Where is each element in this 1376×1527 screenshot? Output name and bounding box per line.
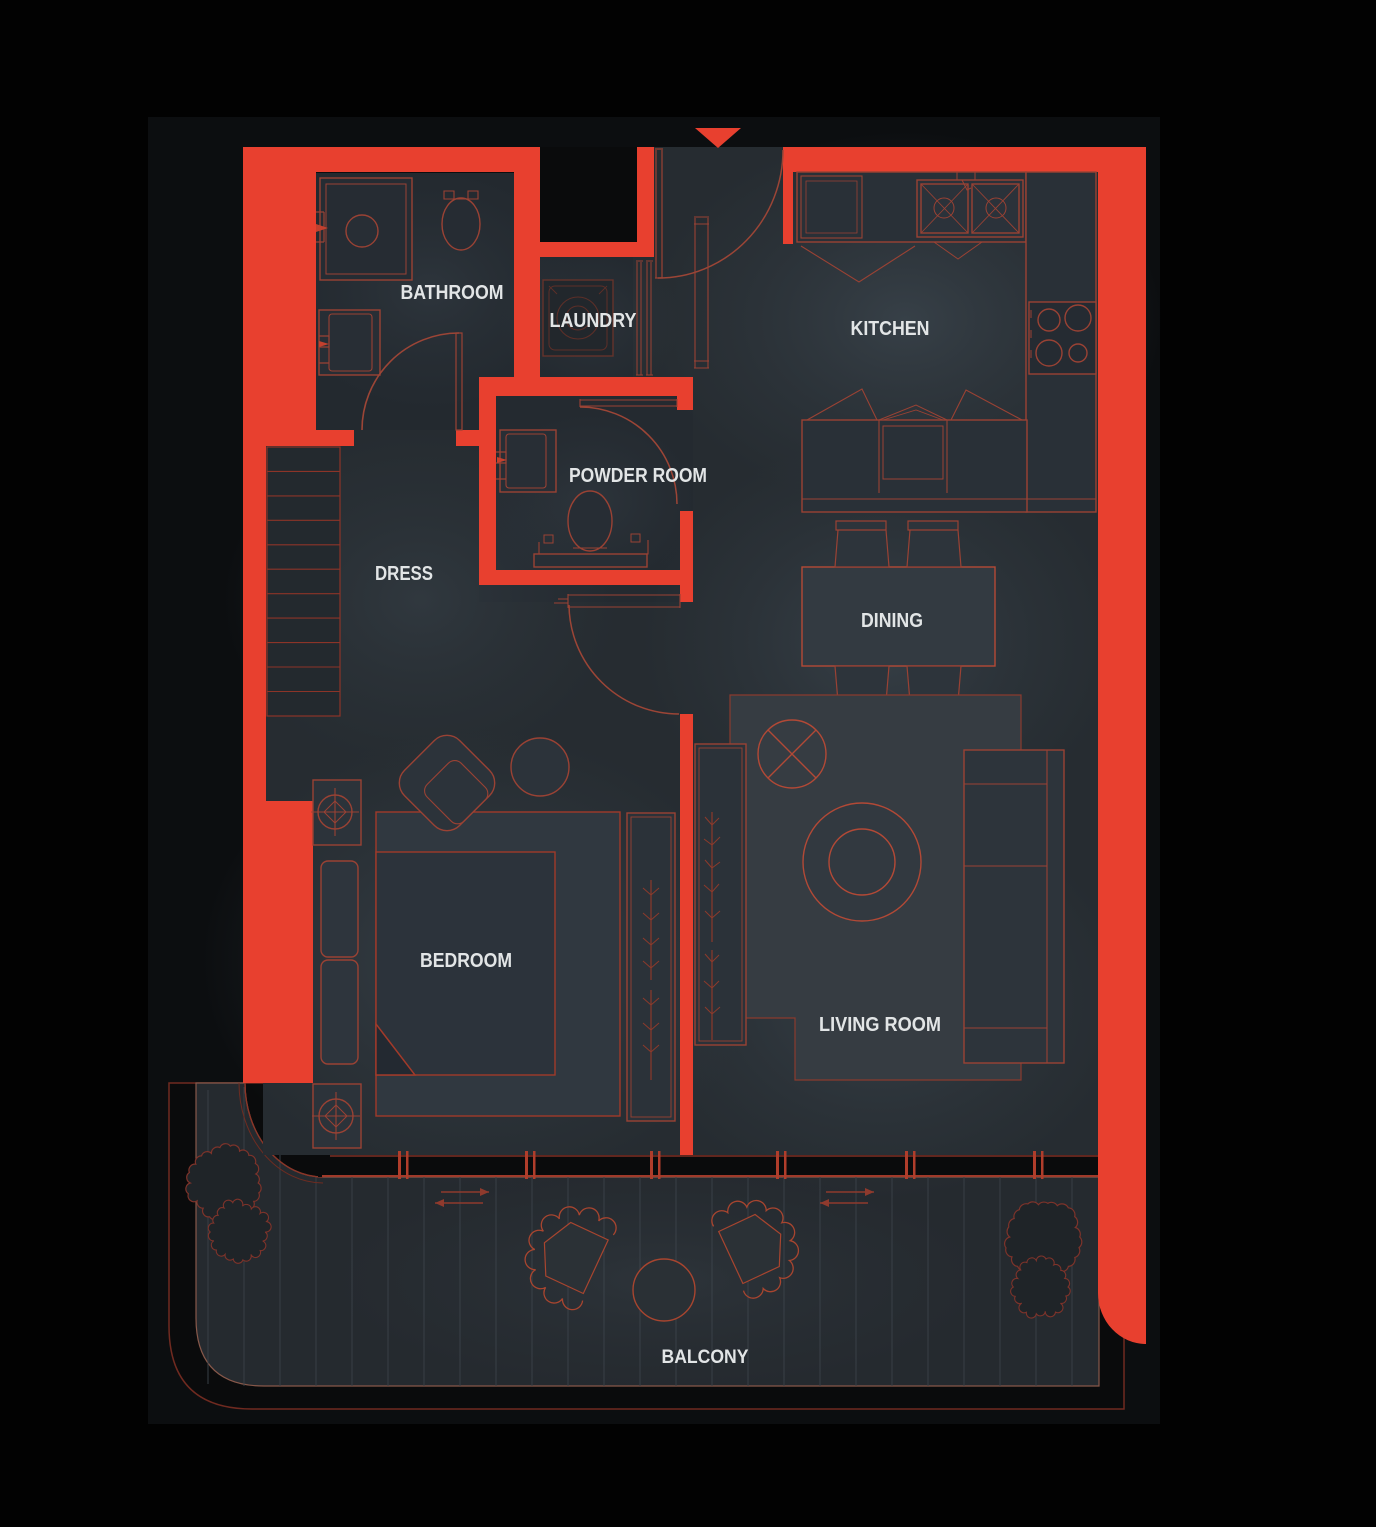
svg-text:LAUNDRY: LAUNDRY: [550, 310, 638, 332]
svg-text:KITCHEN: KITCHEN: [851, 318, 930, 340]
svg-text:LIVING ROOM: LIVING ROOM: [819, 1014, 941, 1036]
svg-text:DINING: DINING: [861, 610, 923, 632]
svg-text:BATHROOM: BATHROOM: [401, 282, 504, 304]
svg-text:BALCONY: BALCONY: [662, 1347, 749, 1368]
svg-text:DRESS: DRESS: [375, 563, 433, 585]
svg-text:BEDROOM: BEDROOM: [420, 950, 512, 972]
svg-text:POWDER ROOM: POWDER ROOM: [569, 465, 707, 487]
